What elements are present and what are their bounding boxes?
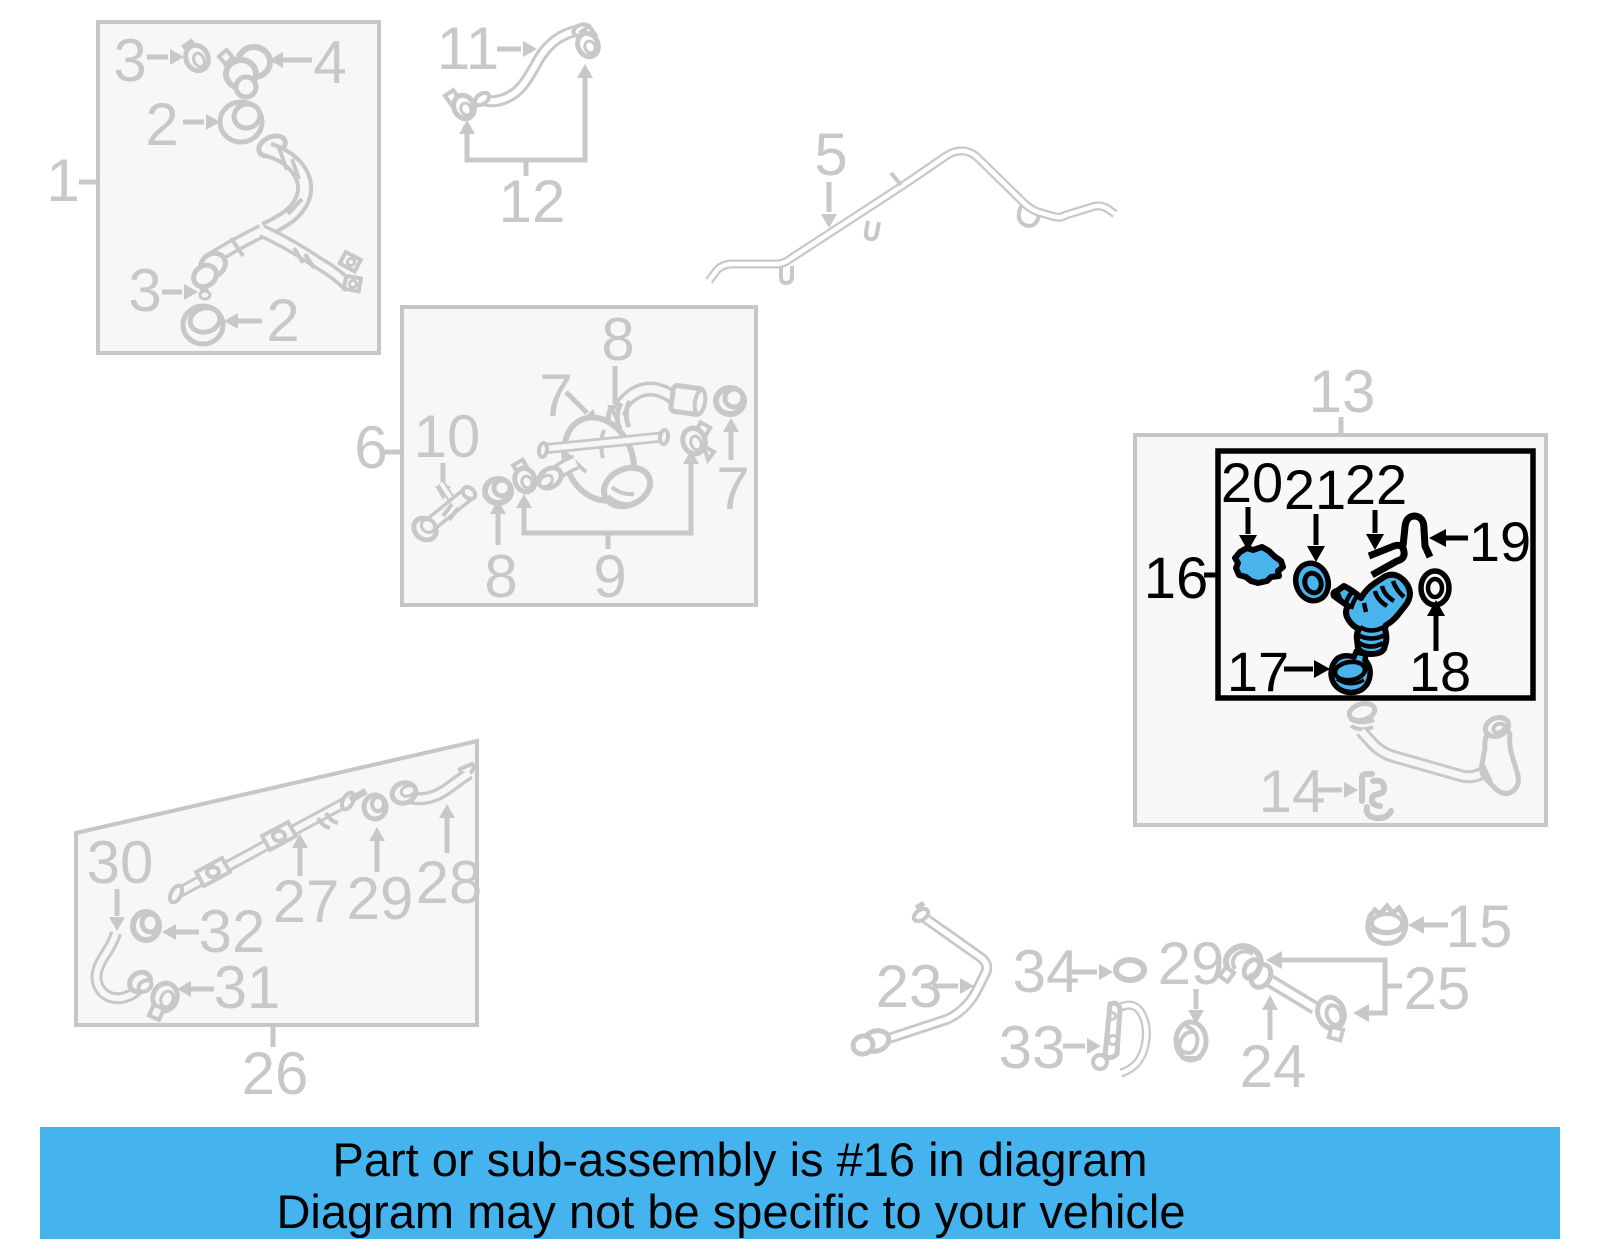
svg-text:18: 18 (1409, 640, 1471, 703)
svg-text:24: 24 (1240, 1033, 1307, 1100)
svg-text:3: 3 (113, 27, 146, 94)
svg-text:15: 15 (1446, 893, 1513, 960)
svg-text:4: 4 (313, 29, 346, 96)
svg-text:19: 19 (1469, 510, 1531, 573)
svg-text:Part or sub-assembly is #16 in: Part or sub-assembly is #16 in diagram (332, 1133, 1147, 1186)
svg-text:9: 9 (593, 543, 626, 610)
svg-text:31: 31 (214, 954, 281, 1021)
svg-text:8: 8 (484, 543, 517, 610)
svg-text:29: 29 (1158, 930, 1225, 997)
svg-text:25: 25 (1404, 955, 1471, 1022)
svg-text:34: 34 (1013, 938, 1080, 1005)
svg-text:Diagram may not be specific to: Diagram may not be specific to your vehi… (276, 1185, 1185, 1238)
svg-text:7: 7 (716, 455, 749, 522)
svg-text:26: 26 (242, 1040, 309, 1107)
svg-text:21: 21 (1284, 458, 1346, 521)
svg-text:10: 10 (414, 403, 481, 470)
svg-text:8: 8 (601, 306, 634, 373)
svg-text:12: 12 (499, 168, 566, 235)
svg-text:13: 13 (1309, 358, 1376, 425)
svg-text:2: 2 (266, 287, 299, 354)
svg-text:20: 20 (1221, 451, 1283, 514)
svg-text:27: 27 (273, 868, 340, 935)
svg-text:2: 2 (145, 91, 178, 158)
svg-text:28: 28 (416, 849, 483, 916)
svg-text:30: 30 (87, 829, 154, 896)
svg-text:5: 5 (814, 121, 847, 188)
svg-text:11: 11 (437, 15, 499, 82)
svg-text:16: 16 (1144, 546, 1209, 611)
svg-text:23: 23 (876, 953, 943, 1020)
svg-text:33: 33 (999, 1014, 1066, 1081)
svg-text:3: 3 (128, 257, 161, 324)
svg-text:6: 6 (354, 414, 387, 481)
svg-text:29: 29 (347, 865, 414, 932)
svg-text:17: 17 (1227, 640, 1289, 703)
svg-text:22: 22 (1345, 453, 1407, 516)
svg-text:1: 1 (46, 147, 79, 214)
